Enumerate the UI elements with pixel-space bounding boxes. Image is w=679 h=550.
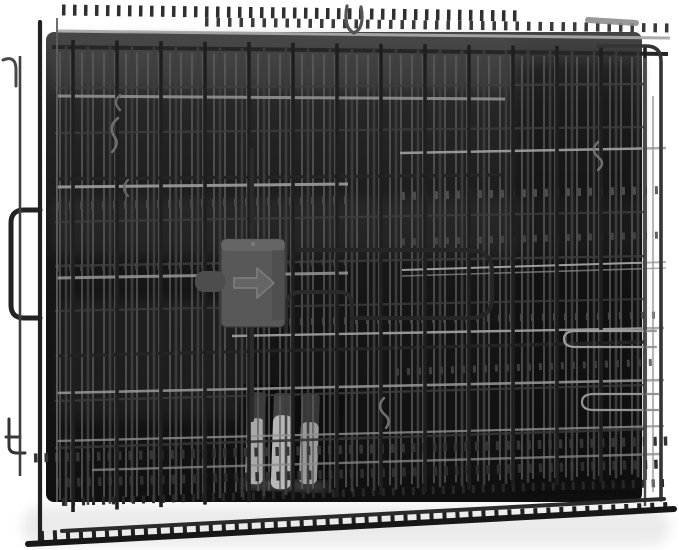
product-image-folded-dog-crate (0, 0, 679, 550)
latch-slider-tab (195, 271, 225, 292)
latch-screw (251, 242, 255, 246)
crate-photo-canvas (0, 0, 679, 550)
latch-shade (272, 250, 284, 320)
wire (588, 20, 636, 23)
tray-right-shade (520, 60, 640, 490)
